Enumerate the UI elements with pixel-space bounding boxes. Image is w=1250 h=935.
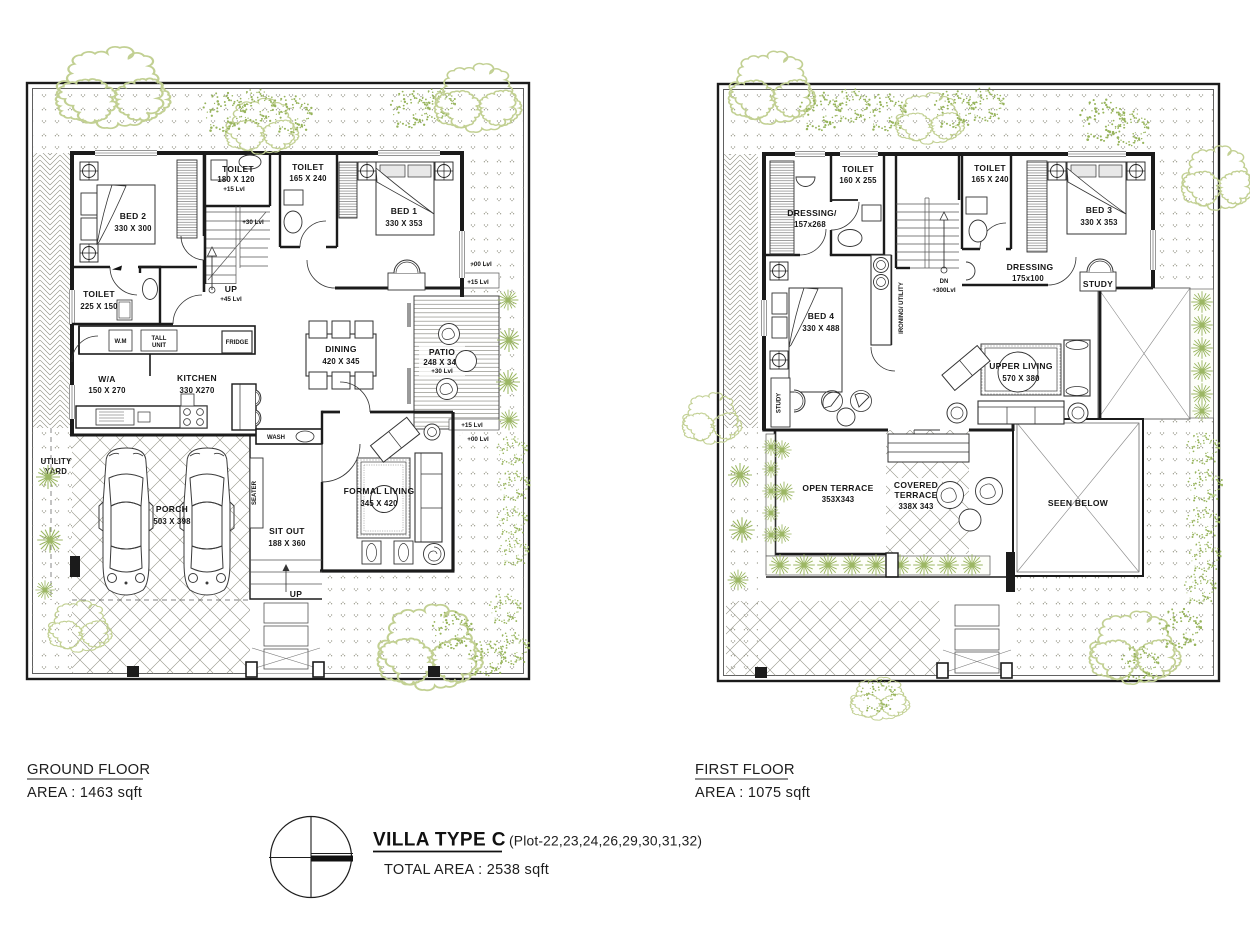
svg-text:338X 343: 338X 343 <box>899 502 934 511</box>
svg-text:UP: UP <box>290 589 302 599</box>
svg-text:+15 Lvl: +15 Lvl <box>467 279 489 286</box>
svg-text:PATIO: PATIO <box>429 347 455 357</box>
svg-text:KITCHEN: KITCHEN <box>177 373 217 383</box>
svg-text:PORCH: PORCH <box>156 504 188 514</box>
svg-text:570 X 380: 570 X 380 <box>1002 374 1040 383</box>
svg-text:157x268: 157x268 <box>794 220 826 229</box>
svg-text:330 X 488: 330 X 488 <box>802 324 840 333</box>
svg-text:DRESSING: DRESSING <box>1007 262 1054 272</box>
svg-text:SIT OUT: SIT OUT <box>269 526 305 536</box>
svg-text:UPPER LIVING: UPPER LIVING <box>989 361 1053 371</box>
svg-text:165 X 240: 165 X 240 <box>971 175 1009 184</box>
svg-text:+30 Lvl: +30 Lvl <box>431 368 453 375</box>
svg-text:STUDY: STUDY <box>777 393 783 413</box>
svg-text:BED 1: BED 1 <box>391 206 418 216</box>
svg-text:+00 Lvl: +00 Lvl <box>470 261 492 268</box>
svg-text:+30 Lvl: +30 Lvl <box>242 219 264 226</box>
svg-text:AREA : 1075 sqft: AREA : 1075 sqft <box>695 785 810 801</box>
svg-text:UNIT: UNIT <box>152 343 166 349</box>
svg-text:TOILET: TOILET <box>842 164 874 174</box>
svg-text:TOILET: TOILET <box>292 162 324 172</box>
svg-text:W.M: W.M <box>115 339 127 345</box>
svg-text:FORMAL LIVING: FORMAL LIVING <box>344 486 415 496</box>
svg-text:UTILITY: UTILITY <box>41 457 72 466</box>
svg-text:TOILET: TOILET <box>974 163 1006 173</box>
svg-text:330 X 300: 330 X 300 <box>114 224 152 233</box>
svg-text:OPEN TERRACE: OPEN TERRACE <box>802 483 873 493</box>
svg-text:+45 Lvl: +45 Lvl <box>220 296 242 303</box>
svg-text:UP: UP <box>225 284 237 294</box>
svg-text:TOILET: TOILET <box>83 289 115 299</box>
svg-text:330 X 353: 330 X 353 <box>1080 218 1118 227</box>
svg-text:+15 Lvl: +15 Lvl <box>461 422 483 429</box>
svg-text:SEEN BELOW: SEEN BELOW <box>1048 498 1109 508</box>
svg-text:TERRACE: TERRACE <box>894 490 937 500</box>
svg-text:FRIDGE: FRIDGE <box>226 340 249 346</box>
svg-text:STUDY: STUDY <box>1083 279 1113 289</box>
svg-text:180 X 120: 180 X 120 <box>217 175 255 184</box>
svg-text:353X343: 353X343 <box>822 495 855 504</box>
svg-text:FIRST FLOOR: FIRST FLOOR <box>695 762 795 778</box>
svg-text:BED 3: BED 3 <box>1086 205 1113 215</box>
svg-text:COVERED: COVERED <box>894 480 938 490</box>
svg-text:DN: DN <box>940 279 949 285</box>
svg-text:420 X 345: 420 X 345 <box>322 357 360 366</box>
svg-text:225 X 150: 225 X 150 <box>80 302 118 311</box>
svg-text:TOILET: TOILET <box>222 164 254 174</box>
svg-text:+00 Lvl: +00 Lvl <box>467 436 489 443</box>
svg-text:IRONING/ UTILITY: IRONING/ UTILITY <box>899 282 905 334</box>
svg-text:188 X 360: 188 X 360 <box>268 539 306 548</box>
svg-text:503 X 398: 503 X 398 <box>153 517 191 526</box>
svg-text:(Plot-22,23,24,26,29,30,31,32): (Plot-22,23,24,26,29,30,31,32) <box>509 834 702 849</box>
svg-text:WASH: WASH <box>267 435 285 441</box>
svg-text:150 X 270: 150 X 270 <box>88 386 126 395</box>
svg-text:DINING: DINING <box>325 344 357 354</box>
svg-text:165 X 240: 165 X 240 <box>289 174 327 183</box>
svg-text:W/A: W/A <box>98 374 115 384</box>
svg-text:TALL: TALL <box>152 336 167 342</box>
svg-text:+300Lvl: +300Lvl <box>932 287 956 294</box>
svg-text:BED 2: BED 2 <box>120 211 147 221</box>
svg-text:DRESSING/: DRESSING/ <box>787 208 837 218</box>
svg-text:BED 4: BED 4 <box>808 311 835 321</box>
svg-text:+15 Lvl: +15 Lvl <box>223 186 245 193</box>
svg-text:175x100: 175x100 <box>1012 274 1044 283</box>
svg-text:160 X 255: 160 X 255 <box>839 176 877 185</box>
svg-text:VILLA TYPE C: VILLA TYPE C <box>373 830 506 851</box>
svg-text:SEATER: SEATER <box>252 480 258 505</box>
svg-text:GROUND FLOOR: GROUND FLOOR <box>27 762 150 778</box>
svg-text:TOTAL AREA : 2538 sqft: TOTAL AREA : 2538 sqft <box>384 862 549 878</box>
svg-text:345 X 420: 345 X 420 <box>360 499 398 508</box>
svg-text:330 X 353: 330 X 353 <box>385 219 423 228</box>
svg-text:AREA : 1463 sqft: AREA : 1463 sqft <box>27 785 142 801</box>
